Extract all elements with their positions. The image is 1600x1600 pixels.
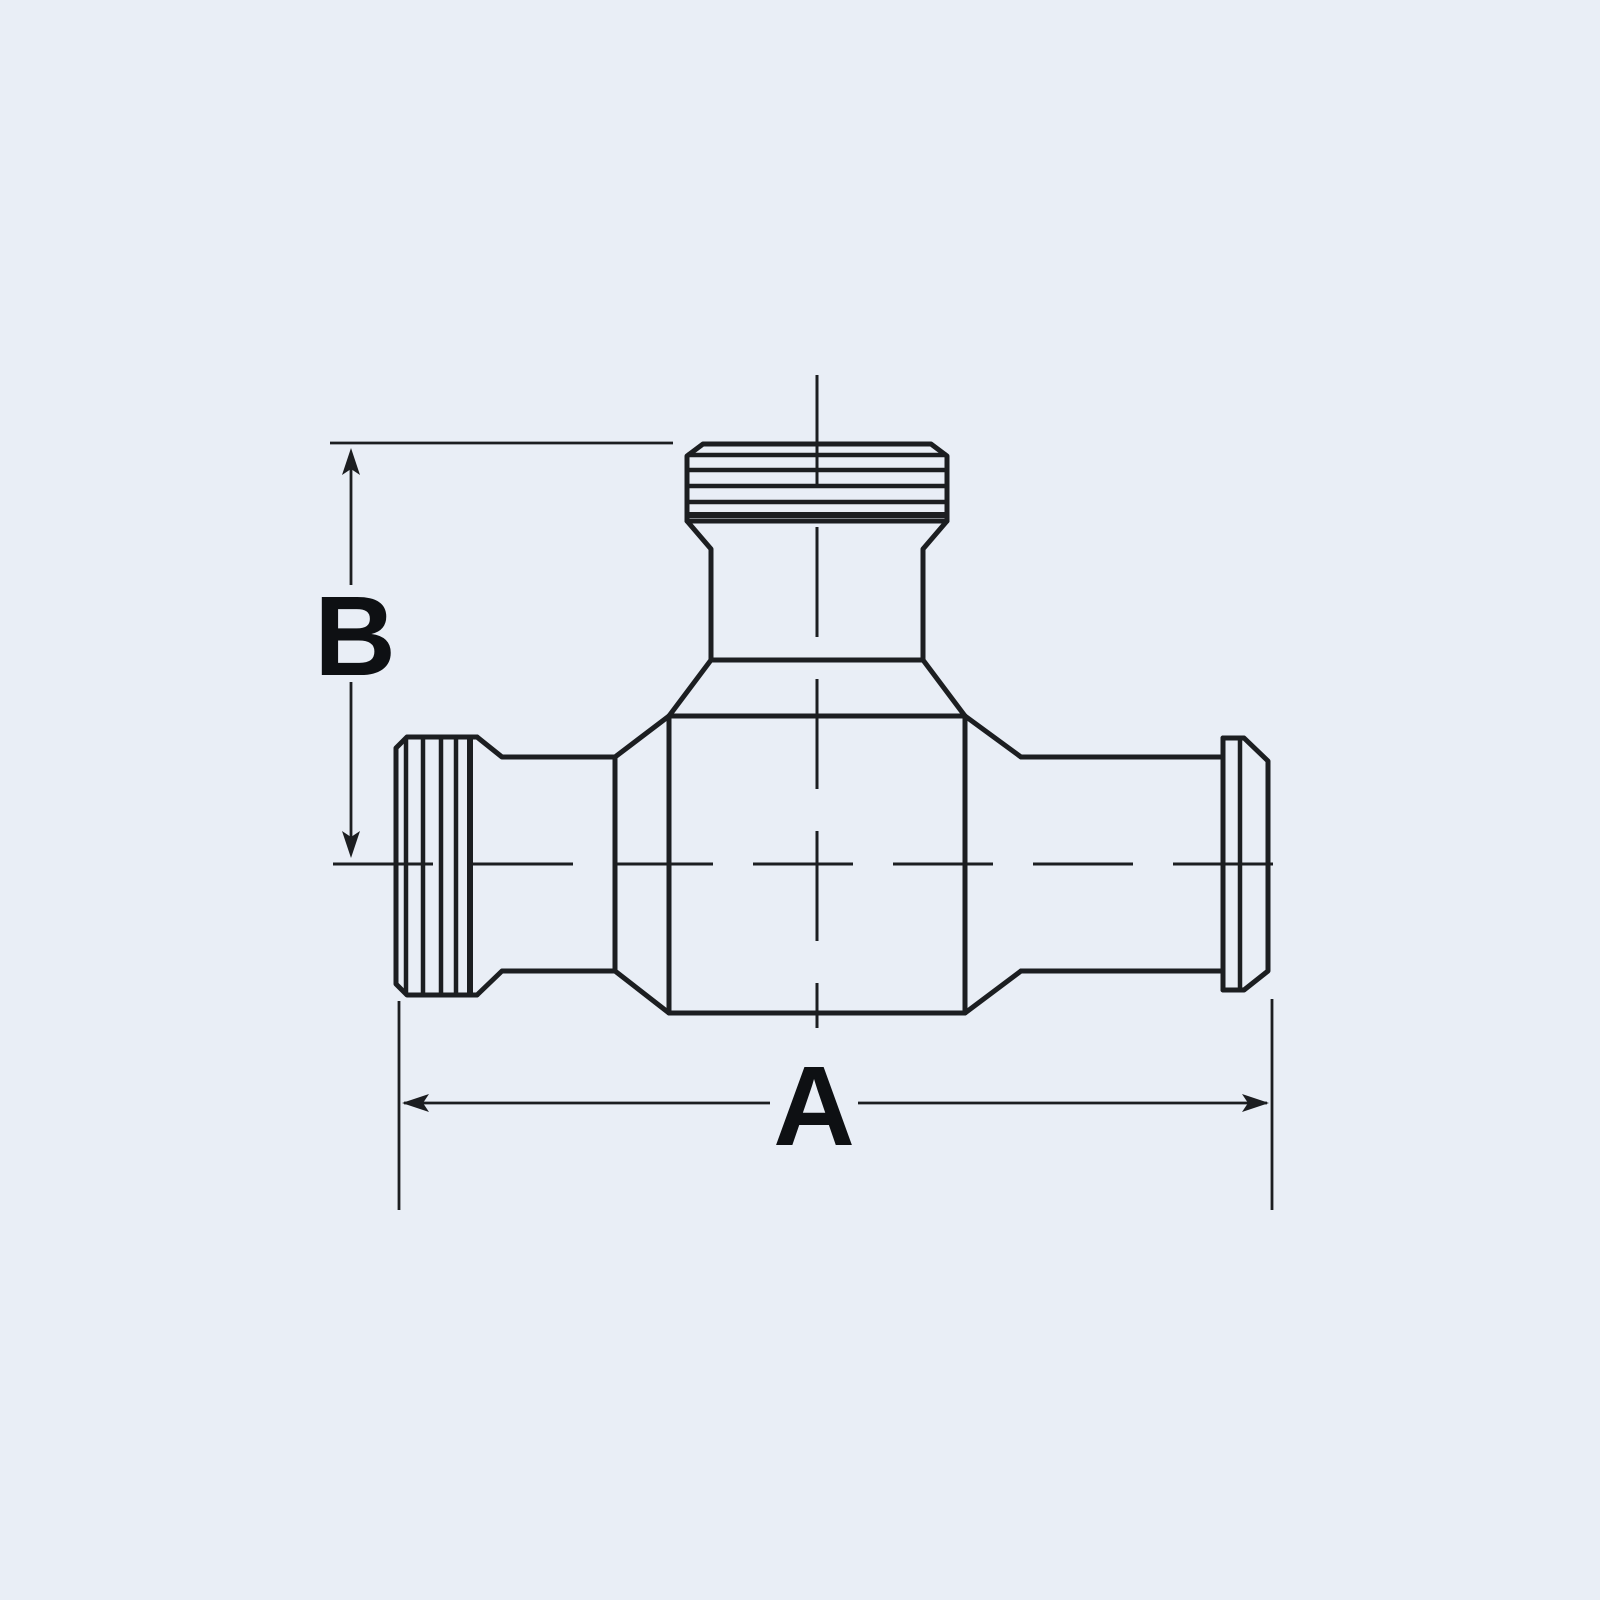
dimension-a-label: A bbox=[773, 1043, 855, 1169]
drawing-canvas: B A bbox=[0, 0, 1600, 1600]
tee-fitting-technical-drawing: B A bbox=[0, 0, 1600, 1600]
dimension-b-label: B bbox=[314, 573, 396, 699]
drawing-background bbox=[0, 0, 1600, 1600]
